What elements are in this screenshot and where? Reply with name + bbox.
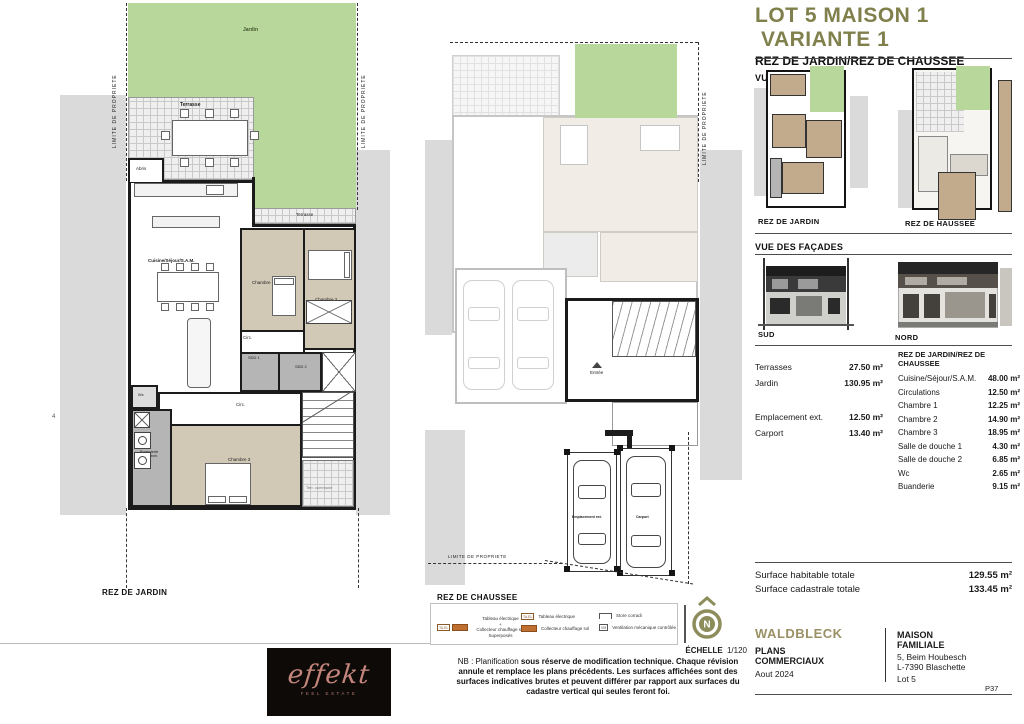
north-compass: N [690, 596, 724, 646]
car-rear-window [468, 357, 500, 369]
stove-icon [206, 185, 224, 195]
area-row: Wc 2.65 m² [898, 469, 1020, 478]
washer-icon [134, 432, 151, 449]
center-plan-title: REZ DE CHAUSSEE [437, 593, 518, 602]
chair [205, 109, 214, 118]
pillow [274, 278, 294, 285]
project-name-line1: MAISON [897, 630, 1017, 640]
area-row: Jardin 130.95 m² [755, 378, 883, 388]
footer-divider [885, 628, 886, 682]
thumb-parking [938, 172, 976, 220]
chair [180, 109, 189, 118]
plan-sheet: { "common": { "limite": "LIMITE DE PROPR… [0, 0, 1024, 724]
legend-text: Tableau électrique + Collecteur chauffag… [474, 616, 526, 639]
area-row: Chambre 2 14.90 m² [898, 415, 1020, 424]
property-line [126, 508, 127, 588]
area-label: Circulations [898, 388, 940, 397]
terr-commune-room [302, 460, 354, 507]
property-limit-label: LIMITE DE PROPRIETE [112, 28, 118, 148]
facade-side-strip [1000, 268, 1012, 326]
legend-group-separate: TA.EL Tableau électrique Collecteur chau… [521, 613, 589, 632]
terrace-label: Terrasse [180, 103, 200, 109]
thumb-room [770, 158, 782, 198]
area-value: 13.40 m² [849, 428, 883, 438]
facade-window [828, 298, 840, 314]
property-limit-label: LIMITE DE PROPRIETE [702, 55, 708, 165]
carport-post [564, 449, 570, 455]
garden-notch [253, 177, 356, 208]
sheet-title: LOT 5 MAISON 1 VARIANTE 1 [755, 4, 1015, 52]
property-limit-label: LIMITE DE PROPRIETE [448, 555, 507, 560]
dryer-icon [134, 452, 151, 469]
facade-window [798, 279, 818, 289]
area-value: 2.65 m² [992, 469, 1020, 478]
chair [250, 131, 259, 140]
property-line [450, 42, 698, 43]
legend-box: TA.EL Tableau électrique + Collecteur ch… [430, 603, 678, 645]
totals-block: Surface habitable totale 129.55 m² Surfa… [755, 570, 1012, 595]
nb-prefix: NB : Planification [458, 657, 521, 666]
thumb-room [782, 162, 824, 194]
thumb-strip [998, 80, 1012, 212]
bed-ghost [560, 125, 588, 165]
stairs [612, 301, 696, 357]
effekt-logo: effekt feel estate [267, 648, 391, 716]
sheet-title-part2: VARIANTE 1 [761, 28, 889, 51]
car-windshield [468, 307, 500, 321]
car-windshield [578, 485, 606, 499]
room-ghost [600, 232, 698, 282]
garden-label: Jardin [243, 28, 258, 34]
car-ghost [463, 280, 505, 390]
car-carport [626, 456, 666, 568]
thumbs-rule [755, 233, 1012, 234]
area-label: Wc [898, 469, 910, 478]
areas-right-header: REZ DE JARDIN/REZ DE CHAUSSEE [898, 350, 1020, 368]
sofa [187, 318, 211, 388]
area-row: Salle de douche 1 4.30 m² [898, 442, 1020, 451]
area-row: Terrasses 27.50 m² [755, 362, 883, 372]
area-value: 9.15 m² [992, 482, 1020, 491]
thumb-garden [956, 66, 990, 110]
total-row: Surface cadastrale totale 133.45 m² [755, 584, 1012, 595]
chair [161, 303, 169, 311]
carport-post [564, 566, 570, 572]
outside-strip [425, 430, 465, 585]
collecteur-symbol [521, 625, 537, 632]
legend-tableau-text: Tableau électrique [538, 614, 575, 620]
effekt-logo-name: effekt [265, 660, 392, 690]
porch [612, 402, 698, 446]
area-value: 12.50 m² [988, 388, 1020, 397]
facade-nord-label: NORD [895, 333, 918, 342]
area-value: 6.85 m² [992, 455, 1020, 464]
facade-roof [766, 266, 846, 276]
area-label: Buanderie [898, 482, 934, 491]
legend-vmc-text: Ventilation mécanique contrôlée [612, 625, 676, 631]
stairs [302, 392, 354, 458]
shaft-box [322, 352, 356, 392]
plan-rez-de-jardin: Jardin Terrasse LIMITE DE PROPRIETE LIMI… [0, 0, 420, 620]
compass-n: N [703, 620, 710, 631]
thumb-room [806, 120, 842, 158]
facade-window [772, 279, 788, 289]
doc-type-line1: PLANS [755, 646, 880, 656]
thumb-left-label: REZ DE JARDIN [758, 217, 819, 226]
project-address2: L-7390 Blaschette [897, 662, 1017, 672]
area-row: Chambre 3 18.95 m² [898, 428, 1020, 437]
dimension-mark: 4 [52, 414, 55, 421]
total-value: 133.45 m² [969, 584, 1012, 595]
pillow [344, 252, 350, 278]
facade-roof [898, 262, 998, 274]
plan-rez-de-chaussee: LIMITE DE PROPRIETE Entrée Emplacement e… [420, 0, 755, 620]
echelle-label: ÉCHELLE [685, 646, 722, 655]
total-row: Surface habitable totale 129.55 m² [755, 570, 1012, 581]
legend-store-text: Store corradi [616, 613, 642, 619]
tableau-symbol: TA.EL [521, 613, 534, 620]
facade-pole [763, 258, 765, 330]
wc-room [131, 385, 158, 409]
nb-note: NB : Planification sous réserve de modif… [448, 657, 748, 697]
area-label: Chambre 1 [898, 401, 938, 410]
chair [205, 158, 214, 167]
carport-post [669, 445, 675, 451]
property-line [358, 508, 359, 588]
thumb-outside [898, 110, 912, 208]
area-label: Terrasses [755, 362, 792, 372]
facade-sud [758, 258, 854, 330]
wall-segment [252, 177, 255, 225]
car-windshield [517, 307, 549, 321]
terr-commune-label: Terr. commune [306, 486, 332, 490]
facade-window [924, 294, 940, 318]
sdd2-label: SDD 2 [295, 365, 307, 369]
chair [206, 303, 214, 311]
car-emplacement [573, 460, 611, 564]
abris-label: Abris [136, 167, 146, 172]
legend-line: + [499, 622, 502, 627]
area-value: 12.25 m² [988, 401, 1020, 410]
thumb-room [772, 114, 806, 148]
store-symbol [599, 613, 612, 619]
chair [230, 158, 239, 167]
project-name-line2: FAMILIALE [897, 640, 1017, 650]
left-plan-title: REZ DE JARDIN [102, 588, 167, 597]
collecteur-symbol [452, 624, 468, 631]
wc-label: Wc [138, 393, 144, 397]
area-label: Salle de douche 2 [898, 455, 962, 464]
chair [161, 131, 170, 140]
echelle-value: 1/120 [727, 646, 747, 655]
facade-base [898, 322, 998, 327]
sdd1-room [240, 352, 280, 392]
section-vue-facades: VUE DES FAÇADES [755, 242, 843, 252]
footer-right: MAISON FAMILIALE 5, Beim Houbesch L-7390… [897, 630, 1017, 684]
bed-ghost [640, 125, 680, 151]
car-rear-window [517, 357, 549, 369]
north-compass-icon: N [690, 596, 724, 646]
chair [176, 263, 184, 271]
property-line [126, 3, 127, 181]
brand-name: WALDBLECK [755, 626, 880, 641]
dining-table [157, 272, 219, 302]
areas-table-right: REZ DE JARDIN/REZ DE CHAUSSEE Cuisine/Sé… [898, 350, 1020, 491]
thumbnail-rez-de-chaussee [898, 62, 1018, 214]
project-address1: 5, Beim Houbesch [897, 652, 1017, 662]
area-row: Cuisine/Séjour/S.A.M. 48.00 m² [898, 374, 1020, 383]
areas-table-left: Terrasses 27.50 m² Jardin 130.95 m² Empl… [755, 362, 883, 438]
area-value: 48.00 m² [988, 374, 1020, 383]
doc-date: Aout 2024 [755, 669, 880, 679]
property-line [688, 432, 689, 584]
chair [191, 263, 199, 271]
garden-area [128, 3, 356, 97]
area-label: Jardin [755, 378, 778, 388]
legend-collecteur-text: Collecteur chauffage sol [541, 626, 589, 632]
total-label: Surface cadastrale totale [755, 584, 860, 595]
area-row: Chambre 1 12.25 m² [898, 401, 1020, 410]
facade-window [770, 298, 790, 314]
area-label: Chambre 3 [898, 428, 938, 437]
footer-left: WALDBLECK PLANS COMMERCIAUX Aout 2024 [755, 626, 880, 679]
total-label: Surface habitable totale [755, 570, 855, 581]
chambre2-room [303, 228, 356, 350]
legend-line: Superposés [488, 633, 512, 638]
property-line [357, 3, 358, 210]
area-row: Salle de douche 2 6.85 m² [898, 455, 1020, 464]
carport-post [617, 445, 623, 451]
facade-ground [758, 324, 854, 326]
legend-line: Tableau électrique [482, 616, 519, 621]
carport-post [669, 570, 675, 576]
area-label: Emplacement ext. [755, 412, 823, 422]
vmc-symbol: VM [599, 624, 608, 631]
circulation2-room [158, 392, 302, 426]
shaft-box [134, 412, 150, 428]
thumb-room [770, 74, 806, 96]
legend-line: Collecteur chauffage sol [476, 627, 524, 632]
facades-rule-top [755, 254, 1012, 255]
car-ghost [512, 280, 554, 390]
area-value: 18.95 m² [988, 428, 1020, 437]
sdd1-label: SDD 1 [248, 356, 260, 360]
chair [180, 158, 189, 167]
total-value: 129.55 m² [969, 570, 1012, 581]
facade-window [903, 294, 919, 318]
terrace-side-label: Terrasse [296, 213, 313, 218]
project-lot: Lot 5 [897, 674, 1017, 684]
footer-rule [755, 694, 1012, 695]
cuisine-label: Cuisine/Séjour/S.A.M. [148, 259, 195, 264]
legend-group-vmc: Store corradi VM Ventilation mécanique c… [599, 613, 676, 631]
carport-label: Carport [636, 516, 649, 520]
page-number: P37 [985, 684, 998, 693]
totals-rule [755, 562, 1012, 563]
chair [176, 303, 184, 311]
effekt-logo-tagline: feel estate [267, 691, 391, 696]
emplacement-label: Emplacement ext. [572, 516, 602, 520]
title-block: LOT 5 MAISON 1 VARIANTE 1 REZ DE JARDIN/… [755, 4, 1015, 64]
area-value: 130.95 m² [844, 378, 883, 388]
car-windshield [631, 483, 661, 497]
kitchen-island [152, 216, 220, 228]
car-rear-window [578, 533, 606, 545]
thumb-outside [850, 96, 868, 188]
area-value: 4.30 m² [992, 442, 1020, 451]
entree-label: Entrée [590, 371, 603, 376]
area-label: Cuisine/Séjour/S.A.M. [898, 374, 976, 383]
legend-divider [684, 605, 686, 643]
area-label: Salle de douche 1 [898, 442, 962, 451]
north-caret-icon [699, 598, 715, 605]
property-limit-label: LIMITE DE PROPRIETE [361, 28, 367, 148]
outdoor-table [172, 120, 248, 156]
circ2-label: Circ. [236, 403, 245, 408]
area-value: 14.90 m² [988, 415, 1020, 424]
facade-window [937, 277, 967, 285]
entrance-arrow [592, 362, 602, 368]
facade-nord [893, 256, 1015, 336]
chair [191, 303, 199, 311]
facades-rule-bottom [755, 345, 1012, 346]
sdd2-room [278, 352, 322, 392]
circulation-room [240, 330, 305, 354]
outside-strip [356, 150, 390, 515]
facade-window [796, 296, 822, 316]
chair [230, 109, 239, 118]
pillow [229, 496, 247, 503]
facade-sud-label: SUD [758, 330, 775, 339]
facade-pole [847, 258, 849, 330]
doc-type-line2: COMMERCIAUX [755, 656, 880, 666]
sheet-title-part1: LOT 5 MAISON 1 [755, 4, 929, 27]
area-row: Buanderie 9.15 m² [898, 482, 1020, 491]
wardrobe-box [306, 300, 352, 324]
garden-area [575, 44, 677, 118]
thumb-garden [810, 66, 844, 112]
thumbnail-rez-de-jardin [752, 62, 872, 214]
scale-note: ÉCHELLE 1/120 [455, 646, 747, 655]
chair [206, 263, 214, 271]
thumb-right-label: REZ DE HAUSSEE [905, 219, 975, 228]
area-row: Circulations 12.50 m² [898, 388, 1020, 397]
wall-segment [252, 224, 356, 227]
area-label: Carport [755, 428, 783, 438]
area-row: Emplacement ext. 12.50 m² [755, 412, 883, 422]
property-line [698, 42, 699, 182]
area-label: Chambre 2 [898, 415, 938, 424]
header-rule [755, 58, 1012, 59]
property-line [428, 563, 562, 564]
chair [161, 263, 169, 271]
pillow [208, 496, 226, 503]
area-row: Carport 13.40 m² [755, 428, 883, 438]
legend-group-superposed: TA.EL Tableau électrique + Collecteur ch… [437, 616, 526, 639]
tableau-symbol: TA.EL [437, 624, 450, 631]
chambre1-label: Chambre 1 [252, 281, 274, 286]
facade-terrace [945, 292, 985, 318]
facade-window [905, 277, 927, 285]
section-divider [0, 643, 430, 644]
facade-window [989, 294, 996, 318]
area-value: 12.50 m² [849, 412, 883, 422]
circ-label: Circ. [243, 336, 252, 341]
car-rear-window [631, 535, 661, 547]
outside-strip [60, 95, 126, 515]
area-value: 27.50 m² [849, 362, 883, 372]
